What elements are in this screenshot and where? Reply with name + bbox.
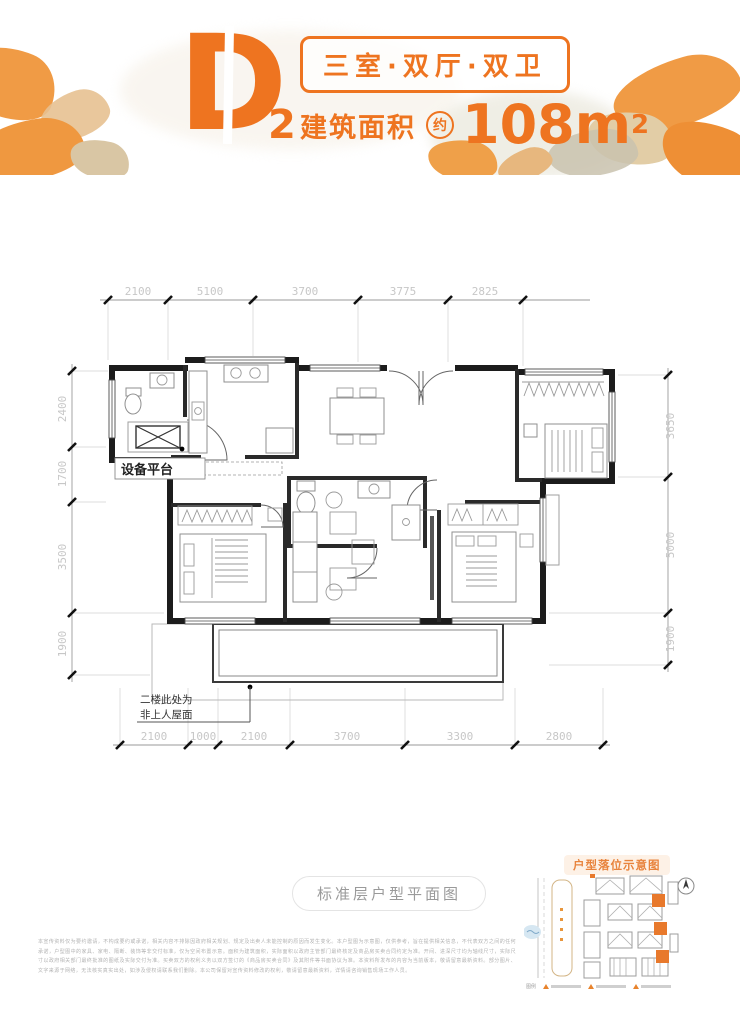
approx-circle-badge: 约 <box>426 111 454 139</box>
dimension-right: 3650 5000 1900 <box>664 368 677 672</box>
furniture <box>125 365 607 602</box>
dimension-bottom: 2100 1000 2100 3700 3300 2800 <box>113 730 610 749</box>
triangle-marker-icon <box>543 984 549 989</box>
dim-label: 3300 <box>447 730 474 743</box>
compass-icon <box>678 878 694 894</box>
area-value: 108m <box>462 98 631 152</box>
floor-plan-drawing: 2100 5100 3700 3775 2825 2400 1700 3500 … <box>0 255 740 795</box>
dim-label: 2100 <box>141 730 168 743</box>
dim-label: 3775 <box>390 285 417 298</box>
svg-text:非上人屋面: 非上人屋面 <box>140 709 193 721</box>
dim-label: 3700 <box>292 285 319 298</box>
dim-label: 1000 <box>190 730 217 743</box>
dimension-left: 2400 1700 3500 1900 <box>56 364 76 682</box>
header-banner: D 2 三室·双厅·双卫 建筑面积 约 108m 2 <box>0 0 740 175</box>
area-exponent: 2 <box>631 110 649 140</box>
dim-label: 2100 <box>241 730 268 743</box>
balcony <box>152 624 503 700</box>
dim-label: 5100 <box>197 285 224 298</box>
legend-item <box>543 984 581 989</box>
dim-label: 2800 <box>546 730 573 743</box>
dim-label: 1900 <box>56 631 69 658</box>
dim-label: 2825 <box>472 285 499 298</box>
legend-item <box>633 984 671 989</box>
dim-label: 2400 <box>56 396 69 423</box>
dim-label: 1700 <box>56 461 69 488</box>
area-label: 建筑面积 <box>300 106 416 145</box>
legend-item <box>588 984 626 989</box>
layout-type-tag: 三室·双厅·双卫 <box>300 36 570 93</box>
svg-text:设备平台: 设备平台 <box>121 462 173 478</box>
dimension-top: 2100 5100 3700 3775 2825 <box>100 285 590 304</box>
dim-label: 3700 <box>334 730 361 743</box>
legend-label: 图例 <box>526 983 536 990</box>
area-row: 建筑面积 约 108m 2 <box>300 96 649 154</box>
minimap-legend: 图例 <box>526 983 671 990</box>
highlighted-units <box>652 894 669 963</box>
minimap-title: 户型落位示意图 <box>564 855 670 875</box>
site-plan-drawing <box>524 874 720 982</box>
dim-label: 1900 <box>664 626 677 653</box>
equipment-platform-label: 设备平台 <box>115 458 205 479</box>
dim-label: 5000 <box>664 532 677 559</box>
legend-text-placeholder <box>641 985 671 988</box>
standard-floor-caption: 标准层户型平面图 <box>292 876 486 911</box>
unit-location-minimap: 户型落位示意图 <box>524 850 720 1000</box>
svg-text:二楼此处为: 二楼此处为 <box>140 693 193 706</box>
dim-label: 3500 <box>56 544 69 571</box>
legend-text-placeholder <box>596 985 626 988</box>
unit-number: 2 <box>268 102 296 148</box>
dim-label: 2100 <box>125 285 152 298</box>
triangle-marker-icon <box>633 984 639 989</box>
disclaimer-text: 本宣传资料仅为要约邀请，不构成要约或承诺，相关内容不排除因政府相关规划、规定及出… <box>38 938 516 996</box>
dim-label: 3650 <box>664 413 677 440</box>
triangle-marker-icon <box>588 984 594 989</box>
legend-text-placeholder <box>551 985 581 988</box>
flyer-page: D 2 三室·双厅·双卫 建筑面积 约 108m 2 <box>0 0 740 1013</box>
roof-note: 二楼此处为 非上人屋面 <box>137 685 252 722</box>
